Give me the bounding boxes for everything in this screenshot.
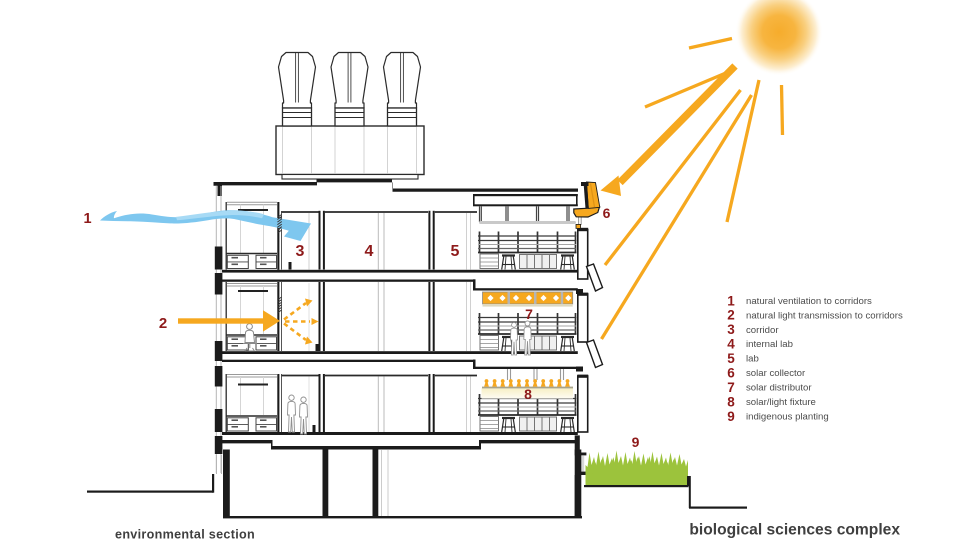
svg-text:3: 3 [296,243,305,260]
svg-text:7: 7 [525,306,533,322]
svg-text:solar/light fixture: solar/light fixture [746,397,816,408]
svg-text:9: 9 [727,409,735,424]
svg-text:6: 6 [603,205,611,221]
svg-text:solar collector: solar collector [746,368,806,379]
svg-text:7: 7 [727,380,735,395]
svg-text:6: 6 [727,366,735,381]
svg-text:indigenous planting: indigenous planting [746,412,829,423]
svg-text:8: 8 [727,394,735,409]
svg-text:3: 3 [727,322,735,337]
svg-text:5: 5 [451,243,460,260]
svg-text:environmental section: environmental section [115,528,255,542]
svg-text:1: 1 [727,293,735,308]
svg-text:lab: lab [746,354,759,365]
svg-text:5: 5 [727,351,735,366]
svg-text:internal lab: internal lab [746,339,793,350]
svg-text:4: 4 [727,337,735,352]
svg-text:natural light transmission to: natural light transmission to corridors [746,310,903,321]
svg-text:9: 9 [632,434,640,450]
svg-text:natural ventilation to corrido: natural ventilation to corridors [746,296,872,307]
svg-text:biological sciences complex: biological sciences complex [689,522,900,539]
svg-text:2: 2 [159,315,167,332]
svg-text:2: 2 [727,308,735,323]
svg-text:solar distributor: solar distributor [746,383,812,394]
svg-text:1: 1 [83,211,91,227]
svg-text:4: 4 [365,243,374,260]
svg-text:8: 8 [524,386,532,402]
svg-text:corridor: corridor [746,325,779,336]
